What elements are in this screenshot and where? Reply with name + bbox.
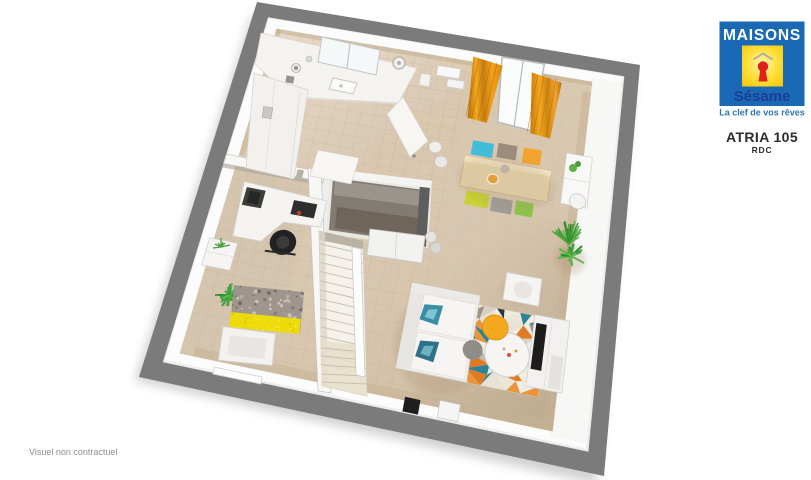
svg-text:Visuel non contractuel: Visuel non contractuel (29, 447, 117, 457)
svg-text:Sésame: Sésame (734, 88, 791, 105)
svg-text:RDC: RDC (752, 145, 773, 155)
svg-text:MAISONS: MAISONS (723, 27, 801, 44)
svg-text:La clef de vos rêves: La clef de vos rêves (719, 108, 805, 118)
svg-text:ATRIA 105: ATRIA 105 (726, 129, 798, 145)
